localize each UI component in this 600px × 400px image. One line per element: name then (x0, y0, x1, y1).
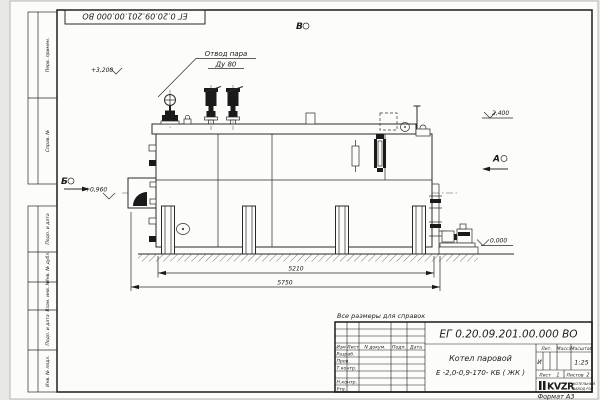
ground-line (138, 254, 514, 262)
boiler-body (156, 134, 432, 247)
logo-subtext-2: ЗАВОД РЭП (573, 387, 594, 391)
engineering-drawing: ЕГ 0.20.09.201.00.000 ВО Перв. примен. С… (0, 0, 600, 400)
lit-value: И (537, 359, 542, 366)
callout-line1: Отвод пара (205, 50, 248, 58)
deck-cylinder-fitting (306, 113, 315, 124)
margin-label-vzam-inv: Взам. инв. № (45, 280, 51, 311)
margin-label-podp-data-1: Подп. и дата (45, 213, 51, 244)
ground-hatch (138, 255, 478, 262)
support-leg-2 (243, 206, 256, 254)
support-leg-4 (413, 206, 426, 254)
row-prov: Пров. (337, 358, 350, 364)
col-list: Лист (346, 344, 359, 350)
reference-note: Все размеры для справок (337, 312, 425, 320)
drawing-sheet-viewport: ЕГ 0.20.09.201.00.000 ВО Перв. примен. С… (0, 0, 600, 400)
logo-text: KVZR (547, 382, 575, 393)
lit-label: Лит. (540, 346, 552, 352)
deck-end-box (416, 129, 430, 136)
margin-label-sprav: Справ. № (45, 130, 51, 153)
sheet-value: 1 (556, 372, 559, 378)
support-leg-3 (336, 206, 349, 254)
burner-icon (128, 178, 156, 208)
sheets-value: 2 (586, 372, 589, 378)
col-izm: Изм (336, 344, 346, 350)
row-tkontr: Т.контр. (337, 365, 357, 371)
row-utv: Утв. (337, 386, 347, 392)
view-right-letter: А (492, 155, 500, 165)
manufacturer-logo: KVZR КОТЕЛЬНЫЙ ЗАВОД РЭП (539, 381, 595, 393)
margin-label-inv-dubl: Инв. № дубл. (45, 251, 51, 282)
view-top-letter: В (296, 22, 303, 32)
scale-value: 1:25 (574, 359, 589, 367)
format-note: Формат А3 (537, 393, 574, 400)
margin-label-podp-data-2: Подп. и дата (45, 314, 51, 345)
logo-bar-icon-2 (543, 381, 546, 390)
view-left-letter: Б (61, 177, 68, 187)
boiler-top-platform (152, 124, 416, 134)
row-razrab: Разраб. (337, 351, 355, 357)
logo-bar-icon (539, 381, 542, 390)
mass-label: Масса (557, 346, 572, 352)
margin-label-perv-primen: Перв. примен. (45, 38, 51, 73)
elevation-ground-value: 0,000 (490, 238, 507, 245)
doc-designation: ЕГ 0.20.09.201.00.000 ВО (439, 329, 577, 341)
product-name-line1: Котел паровой (449, 354, 512, 363)
product-name-line2: Е -2,0-0,9-170- КБ ( ЖК ) (436, 369, 525, 377)
col-data: Дата (409, 344, 422, 350)
corner-designation-text: ЕГ 0.20.09.201.00.000 ВО (82, 12, 187, 21)
sheet-label: Лист (538, 372, 551, 378)
scale-label: Масштаб (571, 346, 593, 352)
col-podp: Подп. (392, 344, 406, 350)
sheets-label: Листов (565, 372, 583, 378)
callout-line2: Ду 80 (215, 61, 237, 69)
dimension-base-value: 5210 (288, 266, 303, 273)
logo-subtext-1: КОТЕЛЬНЫЙ (573, 381, 595, 386)
col-doc: N докум. (364, 344, 385, 350)
elevation-burner-axis-value: +0,960 (85, 187, 107, 194)
row-nkontr: Н.контр. (337, 379, 358, 385)
support-leg-1 (162, 206, 175, 254)
margin-label-inv-podl: Инв. № подл. (45, 355, 51, 387)
dimension-overall-value: 5750 (277, 280, 292, 287)
